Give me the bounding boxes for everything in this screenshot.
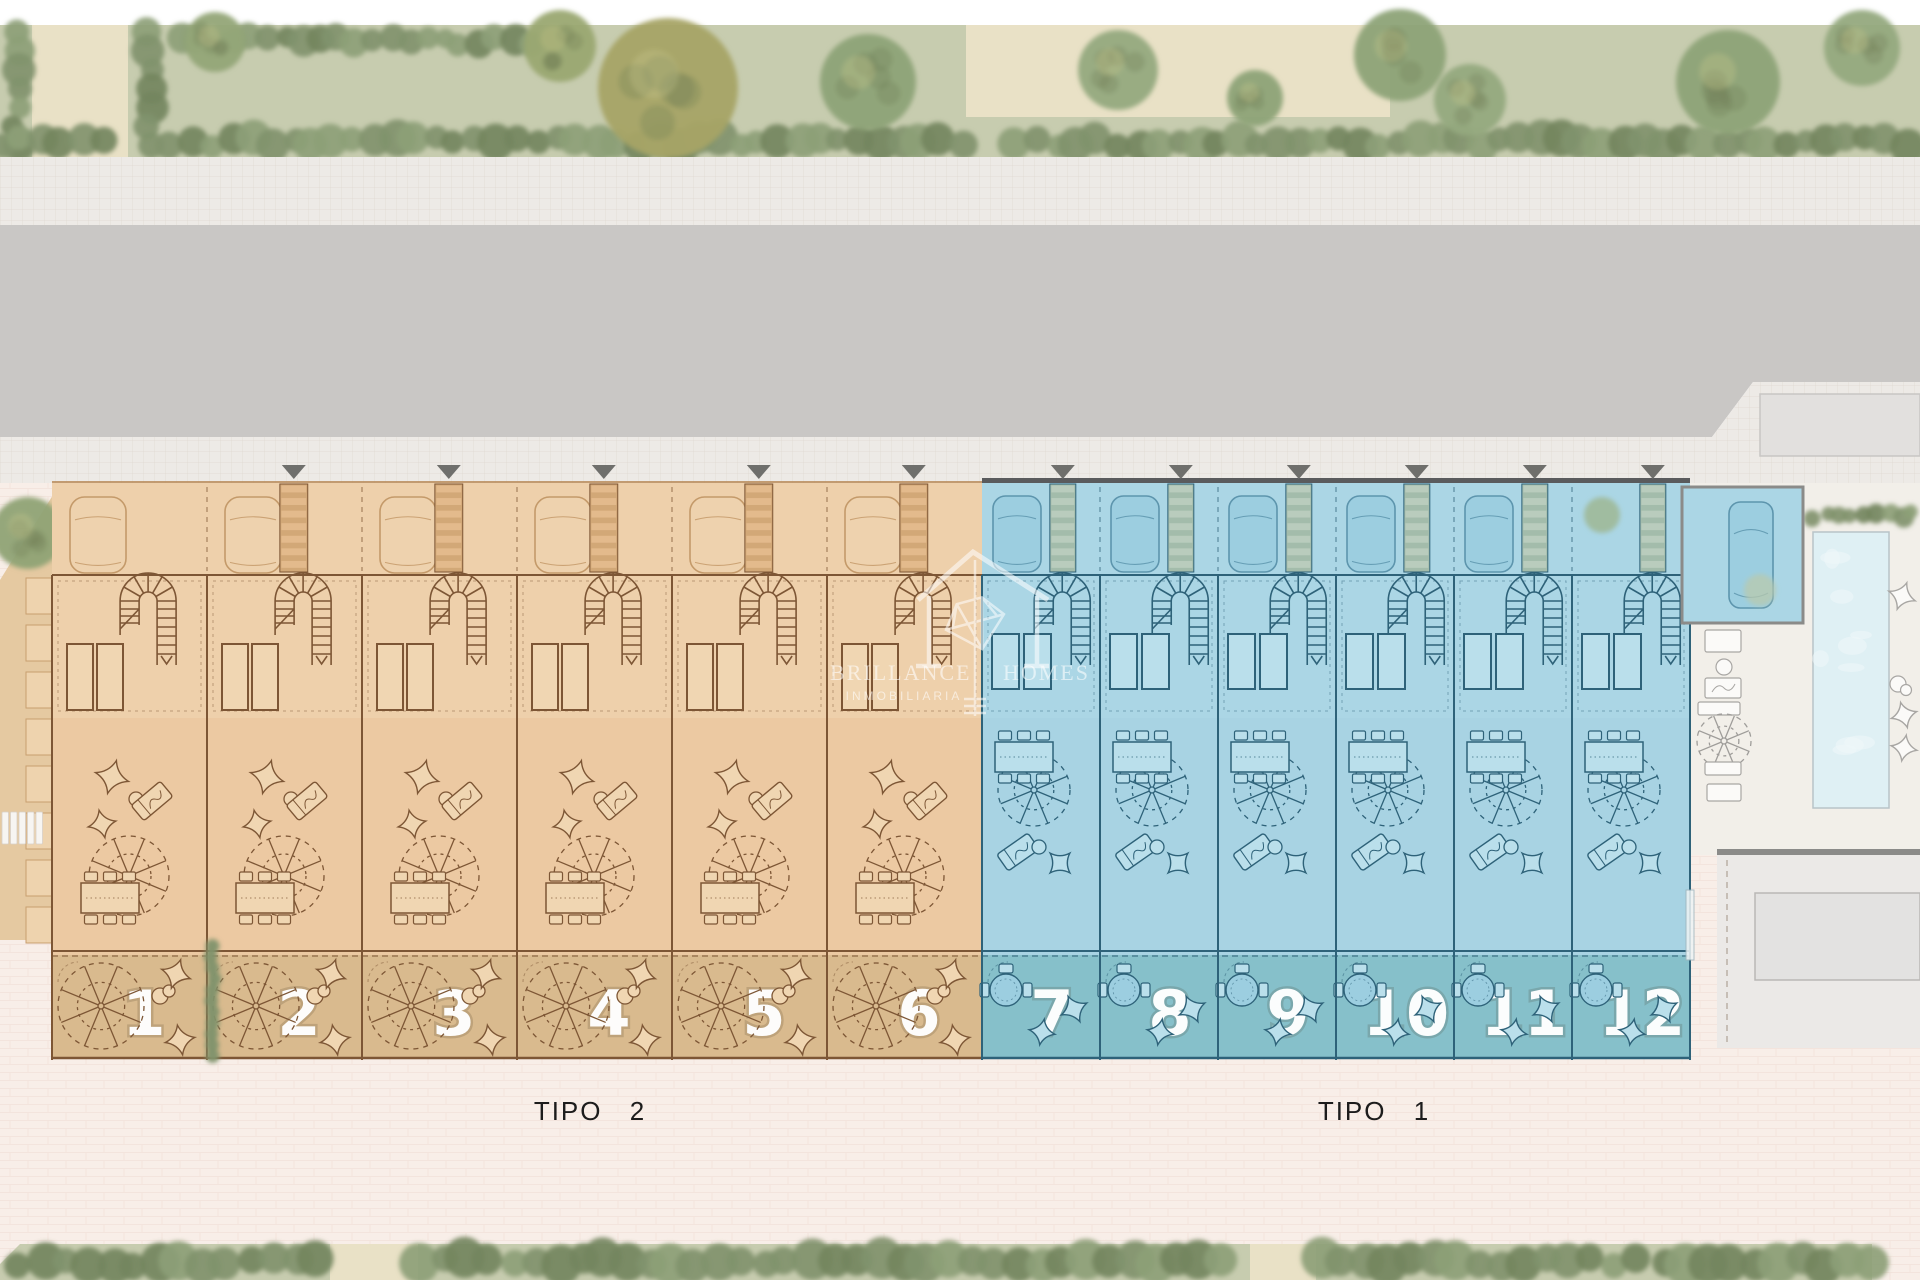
site-plan-drawing: 123456789101112 xyxy=(0,0,1920,1280)
tree xyxy=(1354,9,1446,101)
boundary-wall xyxy=(1717,849,1920,855)
tree xyxy=(1078,30,1158,110)
outbuilding xyxy=(1755,893,1920,980)
tree xyxy=(524,10,596,82)
tree xyxy=(1227,70,1283,126)
tree xyxy=(598,18,738,158)
tree xyxy=(1824,10,1900,86)
tree xyxy=(1434,64,1506,136)
site-plan: 123456789101112 TIPO 2 TIPO 1 BRILLANCE … xyxy=(0,0,1920,1280)
road xyxy=(0,225,1920,437)
label-tipo-1: TIPO 1 xyxy=(1264,1096,1484,1127)
tree xyxy=(820,34,916,130)
tree xyxy=(185,12,245,72)
tree xyxy=(1676,30,1780,134)
label-tipo-2: TIPO 2 xyxy=(480,1096,700,1127)
